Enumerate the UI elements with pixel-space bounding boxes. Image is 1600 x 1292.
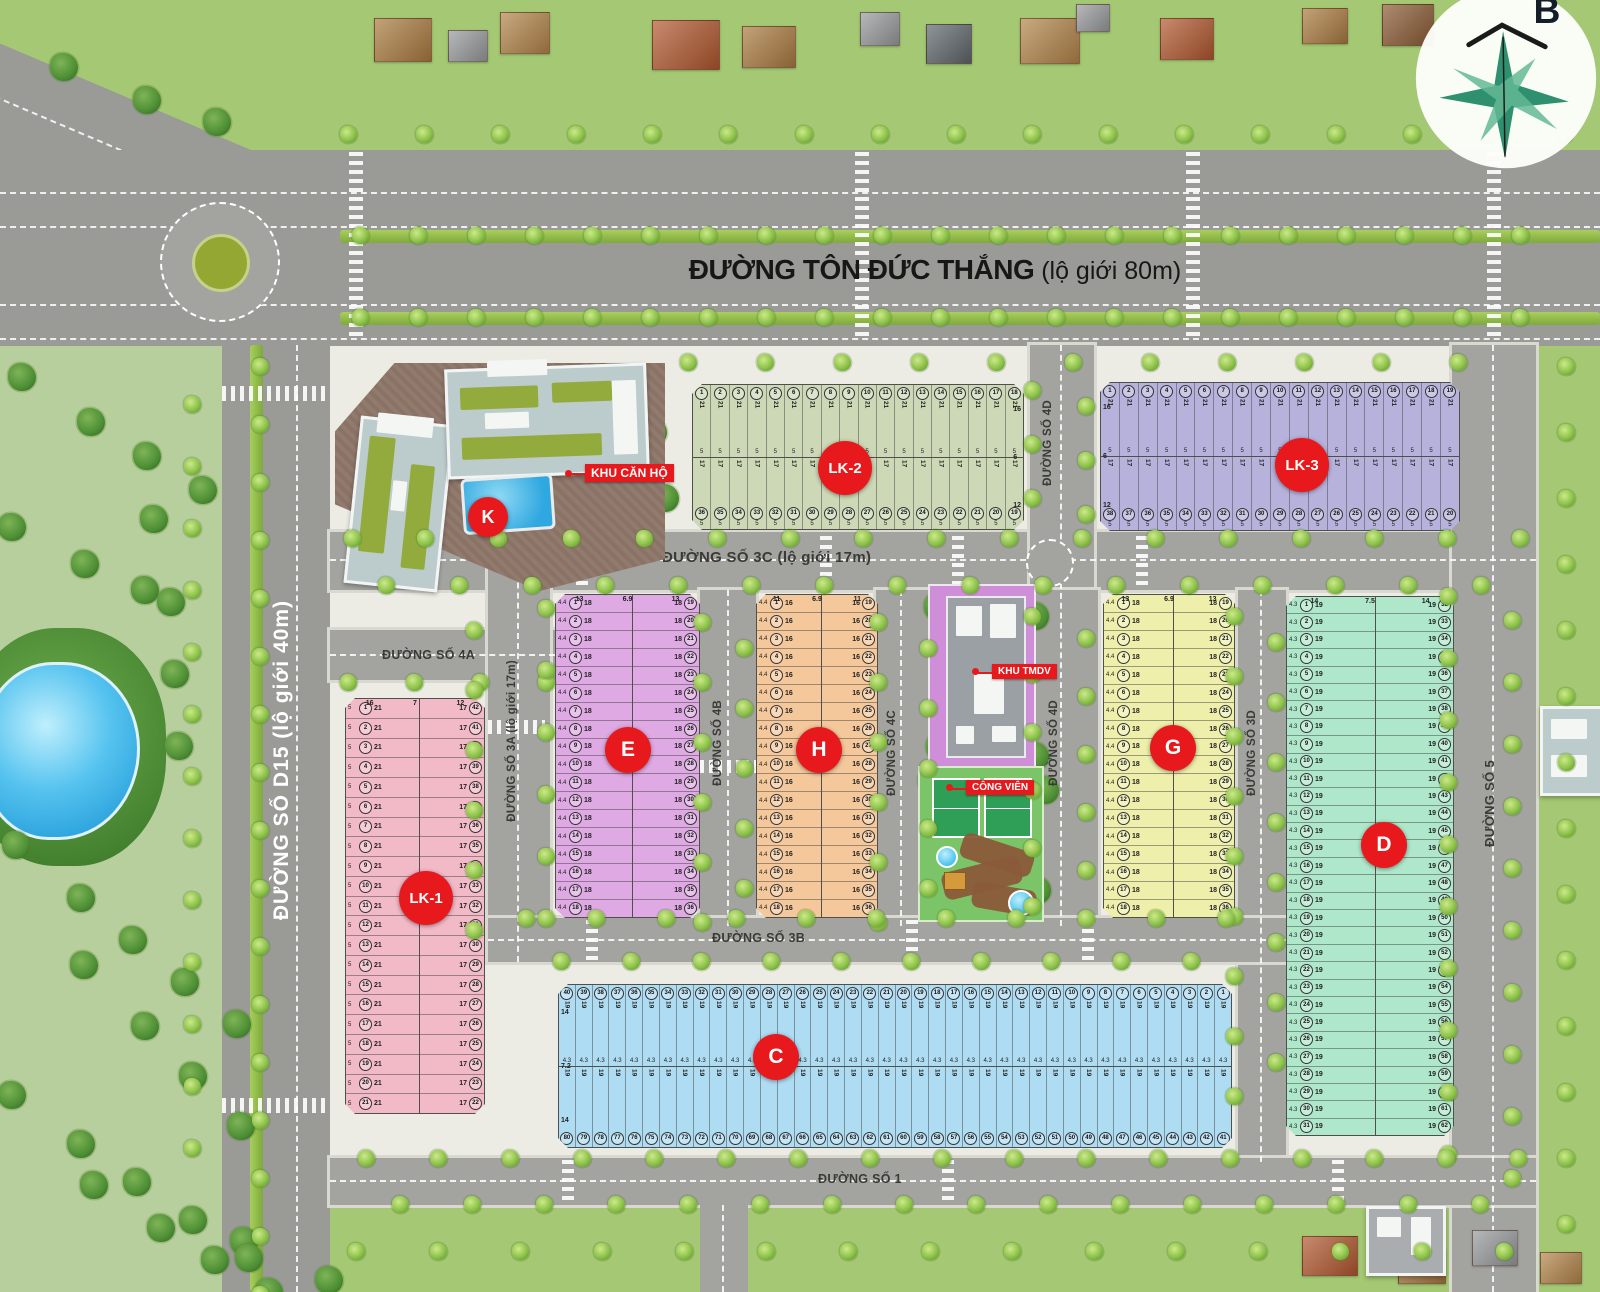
tree-icon	[340, 126, 357, 143]
lot-depth: 19	[1315, 1036, 1323, 1043]
lot-depth: 19	[833, 1001, 840, 1057]
tree-icon	[694, 614, 711, 631]
lot-number: 31	[712, 987, 725, 1000]
lot-depth: 21	[753, 401, 760, 448]
lot: 12194.3	[1029, 985, 1046, 1066]
lot: 17385	[1101, 457, 1119, 530]
lot-number: 14	[770, 830, 783, 843]
lot: 1940	[1376, 735, 1453, 752]
lot-depth: 16	[852, 815, 860, 822]
lot-number: 46	[1133, 1132, 1146, 1145]
lot-depth: 19	[1068, 1069, 1075, 1132]
lot: 1953	[1012, 1067, 1029, 1148]
crosswalk	[562, 1160, 574, 1205]
tree-icon	[1218, 910, 1235, 927]
lot: 1958	[928, 1067, 945, 1148]
lot-width: 4.4	[759, 690, 768, 696]
tree-icon	[8, 363, 36, 391]
lot-number: 8	[1099, 987, 1112, 1000]
lot: 17215	[986, 385, 1004, 457]
lot-width: 5	[957, 521, 960, 527]
tree-icon	[1008, 910, 1025, 927]
tree-icon	[932, 227, 949, 244]
lot-depth: 17	[459, 764, 467, 771]
lot: 1820	[633, 612, 699, 630]
lot-width: 5	[348, 903, 357, 909]
lot-width: 4.3	[832, 1058, 840, 1064]
lot-number: 23	[469, 1077, 482, 1090]
tree-icon	[71, 550, 99, 578]
lot-depth: 16	[852, 887, 860, 894]
lot-number: 36	[1141, 508, 1154, 521]
lot-number: 24	[469, 1058, 482, 1071]
tree-icon	[184, 458, 201, 475]
lot-number: 14	[1117, 830, 1130, 843]
lot-width: 4.4	[1106, 600, 1115, 606]
lot-number: 65	[813, 1132, 826, 1145]
lot-depth: 18	[674, 869, 682, 876]
lot-width: 4.3	[1289, 950, 1298, 956]
lot-number: 18	[569, 902, 582, 915]
lot-number: 6	[1133, 987, 1146, 1000]
lot-depth: 18	[1132, 690, 1140, 697]
lot: 51621	[346, 994, 419, 1014]
lot-number: 57	[947, 1132, 960, 1145]
lot: 1623	[822, 666, 877, 684]
apartment-building-north	[444, 363, 650, 480]
lot-number: 11	[359, 900, 372, 913]
lot-depth: 18	[1209, 690, 1217, 697]
tree-icon	[1504, 798, 1521, 815]
road-width-note: (lộ giới 80m)	[1034, 257, 1181, 285]
lot-depth: 19	[732, 1001, 739, 1057]
lot-depth: 18	[584, 833, 592, 840]
lot-width: 5	[700, 521, 703, 527]
lot: 4.31619	[1287, 857, 1375, 874]
tree-icon	[1226, 1088, 1243, 1105]
tree-icon	[1074, 530, 1091, 547]
lot-depth: 17	[956, 460, 963, 507]
lot-number: 48	[1099, 1132, 1112, 1145]
lot-depth: 21	[1201, 399, 1208, 447]
tree-icon	[392, 1196, 409, 1213]
tree-icon	[133, 442, 161, 470]
lot: 9215	[1251, 383, 1270, 456]
lot-width: 5	[348, 1022, 357, 1028]
lot: 24194.3	[827, 985, 844, 1066]
lot: 4.33119	[1287, 1118, 1375, 1135]
lot-depth: 19	[1315, 602, 1323, 609]
lot-number: 12	[1032, 987, 1045, 1000]
badge-g: G	[1150, 725, 1196, 771]
tree-icon	[518, 910, 535, 927]
lot-width: 5	[866, 521, 869, 527]
house-icon	[742, 26, 796, 68]
lot: 1833	[633, 845, 699, 863]
lot-width: 5	[755, 449, 758, 455]
lot-width: 4.4	[1106, 618, 1115, 624]
tree-icon	[1440, 836, 1457, 853]
lot-depth: 19	[698, 1069, 705, 1132]
lot-width: 4.4	[1106, 672, 1115, 678]
lot-number: 64	[830, 1132, 843, 1145]
lot-number: 12	[1117, 794, 1130, 807]
lot: 6194.3	[1130, 985, 1147, 1066]
house-icon	[1020, 18, 1080, 64]
tree-icon	[1164, 309, 1181, 326]
lot: 1958	[1376, 1048, 1453, 1065]
lot: 4.32819	[1287, 1066, 1375, 1083]
lot-number: 16	[1387, 385, 1400, 398]
lot-width: 5	[939, 521, 942, 527]
lot-depth: 18	[674, 636, 682, 643]
lot-depth: 16	[852, 833, 860, 840]
tree-icon	[1184, 1196, 1201, 1213]
lot-depth: 21	[374, 784, 382, 791]
lane-dash	[722, 1205, 724, 1292]
lot: 4.32319	[1287, 979, 1375, 996]
road-label-d15: ĐƯỜNG SỐ D15 (lộ giới 40m)	[270, 600, 294, 920]
lot-number: 31	[862, 812, 875, 825]
lot-depth: 18	[674, 618, 682, 625]
green-roof-patch	[358, 436, 396, 554]
lot: 1819	[1174, 595, 1234, 612]
lot-number: 8	[1236, 385, 1249, 398]
lot-number: 12	[770, 794, 783, 807]
lot-width: 5	[348, 765, 357, 771]
lot: 17255	[894, 458, 912, 530]
tree-icon	[1328, 1196, 1345, 1213]
lot-depth: 16	[785, 833, 793, 840]
lot: 1630	[822, 791, 877, 809]
lot-depth: 19	[1315, 1123, 1323, 1130]
lot: 16215	[968, 385, 986, 457]
lot: 13215	[1327, 383, 1346, 456]
lot-width: 4.3	[1084, 1058, 1092, 1064]
lot-depth: 19	[1315, 1106, 1323, 1113]
lot: 18215	[1005, 385, 1023, 457]
lot-width: 5	[348, 1101, 357, 1107]
tree-icon	[743, 577, 760, 594]
tree-icon	[1328, 126, 1345, 143]
lot-width: 5	[1392, 522, 1395, 528]
lot-depth: 18	[1132, 672, 1140, 679]
lot-number: 9	[1117, 740, 1130, 753]
lot-depth: 19	[917, 1069, 924, 1132]
lot-depth: 19	[631, 1069, 638, 1132]
lot: 23194.3	[844, 985, 861, 1066]
tree-icon	[512, 1243, 529, 1260]
road-label-4b: ĐƯỜNG SỐ 4B	[712, 700, 724, 786]
lot-number: 75	[645, 1132, 658, 1145]
lot-depth: 17	[459, 903, 467, 910]
lot-number: 19	[1443, 385, 1456, 398]
lot-depth: 17	[974, 460, 981, 507]
badge-c: C	[753, 1034, 799, 1080]
lot-width: 4.3	[1289, 637, 1298, 643]
tree-icon	[920, 640, 937, 657]
tree-icon	[1558, 1084, 1575, 1101]
lot-depth: 18	[1209, 797, 1217, 804]
lot-depth: 21	[374, 1041, 382, 1048]
lot-number: 17	[569, 884, 582, 897]
lot: 25194.3	[810, 985, 827, 1066]
lot: 4.41616	[757, 863, 821, 881]
lot-depth: 19	[967, 1001, 974, 1057]
lot-number: 25	[1349, 508, 1362, 521]
lot: 4.4616	[757, 684, 821, 702]
tree-icon	[1024, 840, 1041, 857]
tree-icon	[1078, 630, 1095, 647]
lot-number: 9	[1255, 385, 1268, 398]
lot-depth: 16	[785, 672, 793, 679]
lot-width: 4.3	[1000, 1058, 1008, 1064]
lot-depth: 17	[459, 982, 467, 989]
tree-icon	[1024, 898, 1041, 915]
lot: 6215	[784, 385, 802, 457]
lot: 8215	[1232, 383, 1251, 456]
lot: 1972	[693, 1067, 710, 1148]
lot-number: 3	[1300, 633, 1313, 646]
lot-number: 35	[862, 884, 875, 897]
lot-number: 38	[594, 987, 607, 1000]
tree-icon	[1040, 1196, 1057, 1213]
tree-icon	[1558, 820, 1575, 837]
tree-icon	[1268, 994, 1285, 1011]
lot: 1970	[726, 1067, 743, 1148]
lot-number: 36	[695, 507, 708, 520]
lot: 1962	[1376, 1118, 1453, 1135]
lot-width: 5	[348, 705, 357, 711]
tree-icon	[1006, 1150, 1023, 1167]
lot-depth: 19	[1428, 1019, 1436, 1026]
tree-icon	[352, 309, 369, 326]
lot: 4.4716	[757, 702, 821, 720]
tree-icon	[1327, 577, 1344, 594]
lot-number: 18	[931, 987, 944, 1000]
lot-depth: 19	[1315, 723, 1323, 730]
tree-icon	[700, 227, 717, 244]
lot-depth: 16	[852, 636, 860, 643]
lot-number: 4	[1160, 385, 1173, 398]
lot-number: 24	[1219, 687, 1232, 700]
lot-depth: 19	[664, 1001, 671, 1057]
lot-number: 32	[769, 507, 782, 520]
tree-icon	[728, 910, 745, 927]
lot-depth: 19	[1428, 897, 1436, 904]
roof-unit	[487, 359, 548, 377]
tree-icon	[1078, 862, 1095, 879]
lot-width: 5	[348, 982, 357, 988]
lot: 1959	[1376, 1066, 1453, 1083]
tree-icon	[1048, 227, 1065, 244]
lot-width: 5	[755, 521, 758, 527]
lot-width: 4.4	[558, 780, 567, 786]
lot-width: 4.3	[647, 1058, 655, 1064]
lot: 17205	[986, 458, 1004, 530]
lot: 11215	[876, 385, 894, 457]
lot: 33194.3	[676, 985, 693, 1066]
tree-icon	[1454, 309, 1471, 326]
lot-number: 61	[1438, 1103, 1451, 1116]
tree-icon	[1512, 530, 1529, 547]
lot-number: 33	[678, 987, 691, 1000]
lot-number: 15	[981, 987, 994, 1000]
lot-depth: 18	[1209, 726, 1217, 733]
tree-icon	[1504, 922, 1521, 939]
lot: 1951	[1046, 1067, 1063, 1148]
lot-number: 33	[1198, 508, 1211, 521]
tree-icon	[161, 660, 189, 688]
lot-width: 5	[1222, 522, 1225, 528]
lot: 4.32719	[1287, 1048, 1375, 1065]
lot-depth: 21	[374, 982, 382, 989]
lot-depth: 19	[1428, 689, 1436, 696]
tree-icon	[252, 996, 269, 1013]
lot-depth: 18	[1132, 905, 1140, 912]
lot-depth: 19	[1428, 1054, 1436, 1061]
tree-icon	[1226, 968, 1243, 985]
lot-depth: 19	[1186, 1001, 1193, 1057]
tree-icon	[1181, 577, 1198, 594]
lot-width: 4.4	[558, 600, 567, 606]
lot: 15194.3	[979, 985, 996, 1066]
lot-depth: 16	[785, 726, 793, 733]
tree-icon	[1366, 1150, 1383, 1167]
lot-number: 17	[1300, 877, 1313, 890]
lot-depth: 19	[1018, 1001, 1025, 1057]
lot-number: 44	[1438, 807, 1451, 820]
tree-icon	[1024, 382, 1041, 399]
lot-width: 4.3	[1289, 741, 1298, 747]
lot-number: 2	[1200, 987, 1213, 1000]
lot-width: 5	[1278, 522, 1281, 528]
tree-icon	[165, 732, 193, 760]
lot-number: 29	[684, 776, 697, 789]
lane-dash	[330, 1180, 1536, 1182]
tree-icon	[1252, 126, 1269, 143]
tree-icon	[1396, 309, 1413, 326]
lot: 1819	[633, 595, 699, 612]
road-label-4d-south: ĐƯỜNG SỐ 4D	[1048, 700, 1060, 786]
lot-depth: 19	[580, 1001, 587, 1057]
tree-icon	[184, 1078, 201, 1095]
lot-width: 5	[1184, 522, 1187, 528]
lot-depth: 18	[674, 761, 682, 768]
tree-icon	[584, 309, 601, 326]
lot: 39194.3	[575, 985, 592, 1066]
lot: 1215	[693, 385, 710, 457]
lot-depth: 19	[1102, 1001, 1109, 1057]
lot-number: 12	[897, 387, 910, 400]
tree-icon	[1164, 227, 1181, 244]
lot-depth: 19	[1220, 1001, 1227, 1057]
lot-width: 4.3	[1101, 1058, 1109, 1064]
lot-depth: 16	[852, 708, 860, 715]
lot: 6215	[1194, 383, 1213, 456]
tree-icon	[758, 1243, 775, 1260]
lot-depth: 16	[852, 905, 860, 912]
tree-icon	[889, 577, 906, 594]
lot-number: 51	[1438, 929, 1451, 942]
lot-depth: 16	[852, 600, 860, 607]
lot-depth: 18	[584, 654, 592, 661]
lot-number: 9	[842, 387, 855, 400]
lot: 17245	[913, 458, 931, 530]
tree-icon	[315, 1266, 343, 1292]
lot-depth: 17	[459, 1021, 467, 1028]
lot-width: 4.3	[1169, 1058, 1177, 1064]
lot: 1952	[1029, 1067, 1046, 1148]
lot-depth: 21	[1371, 399, 1378, 447]
lot-width: 4.3	[1289, 724, 1298, 730]
lot: 5215	[1176, 383, 1195, 456]
lot-number: 27	[1300, 1051, 1313, 1064]
tree-icon	[553, 953, 570, 970]
lot-width: 4.4	[1106, 905, 1115, 911]
tree-icon	[119, 926, 147, 954]
lot: 4.3219	[1287, 613, 1375, 630]
lot: 1735	[420, 836, 484, 856]
lot-width: 5	[348, 1061, 357, 1067]
lot-number: 61	[880, 1132, 893, 1145]
lot-width: 5	[348, 725, 357, 731]
lot-number: 34	[661, 987, 674, 1000]
lot-number: 39	[469, 761, 482, 774]
lot-number: 33	[750, 507, 763, 520]
lot-depth: 16	[785, 851, 793, 858]
lot-width: 5	[1297, 522, 1300, 528]
lot-depth: 17	[937, 460, 944, 507]
tree-icon	[816, 309, 833, 326]
lot-number: 16	[359, 998, 372, 1011]
tree-icon	[67, 884, 95, 912]
block-c: 40194.339194.338194.337194.336194.335194…	[558, 984, 1232, 1148]
lot-number: 22	[1406, 508, 1419, 521]
tree-icon	[833, 953, 850, 970]
lot: 4.41518	[556, 845, 632, 863]
lot-number: 37	[1122, 508, 1135, 521]
lot-depth: 17	[459, 1041, 467, 1048]
tree-icon	[378, 577, 395, 594]
lot: 1941	[1214, 1067, 1231, 1148]
lot-depth: 18	[674, 708, 682, 715]
lot-width: 4.4	[558, 798, 567, 804]
lot-number: 7	[359, 820, 372, 833]
tree-icon	[1504, 612, 1521, 629]
tree-icon	[694, 914, 711, 931]
lot-width: 4.3	[664, 1058, 672, 1064]
lot: 17195	[1005, 458, 1023, 530]
lot-number: 41	[1438, 755, 1451, 768]
lot-depth: 19	[648, 1001, 655, 1057]
lot-width: 5	[1373, 448, 1376, 454]
lot-number: 23	[1300, 981, 1313, 994]
lot-number: 26	[1300, 1033, 1313, 1046]
lot-width: 5	[348, 943, 357, 949]
lot-depth: 21	[1428, 399, 1435, 447]
lot: 2194.3	[1197, 985, 1214, 1066]
tree-icon	[932, 309, 949, 326]
lot-number: 50	[1065, 1132, 1078, 1145]
lot-width: 5	[792, 521, 795, 527]
lot-width: 4.4	[1106, 762, 1115, 768]
tree-icon	[758, 309, 775, 326]
lot-number: 36	[628, 987, 641, 1000]
lot-width: 4.3	[1289, 602, 1298, 608]
lot-row: 1215221532154215521562157215821592151021…	[1101, 383, 1459, 456]
badge-lk1: LK-1	[399, 871, 453, 925]
